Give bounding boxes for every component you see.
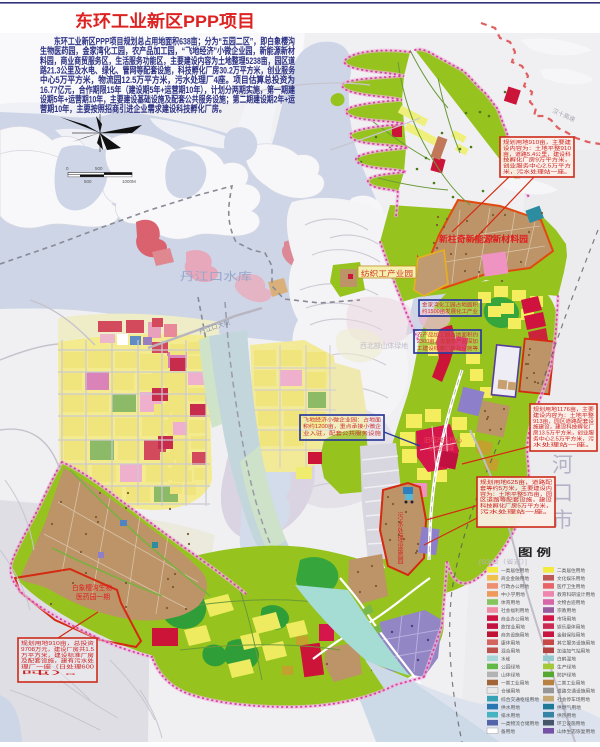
svg-text:防护绿地: 防护绿地 — [557, 672, 576, 679]
svg-text:工建设标准厂房及设施等: 工建设标准厂房及设施等 — [417, 344, 478, 352]
svg-text:施建设，建设科技孵化厂: 施建设，建设科技孵化厂 — [533, 423, 594, 431]
svg-text:业入驻，配套公共服务设施: 业入驻，配套公共服务设施 — [303, 429, 381, 437]
svg-text:路21.3公里及水电、绿化、管网等配套设施，科技孵化厂房30: 路21.3公里及水电、绿化、管网等配套设施，科技孵化厂房30.2万平方米，创业服… — [40, 65, 296, 76]
svg-text:道路交通设施用地: 道路交通设施用地 — [557, 688, 595, 695]
svg-text:万平方米，建设标准厂房: 万平方米，建设标准厂房 — [21, 651, 94, 659]
svg-text:9708万元，建设厂房共1.5: 9708万元，建设厂房共1.5 — [21, 645, 94, 653]
svg-text:生产绿地: 生产绿地 — [557, 664, 576, 671]
svg-text:规划用地1176亩，主要: 规划用地1176亩，主要 — [533, 405, 594, 413]
svg-text:其它服务设施用地: 其它服务设施用地 — [557, 639, 595, 646]
svg-text:混合用地: 混合用地 — [501, 648, 520, 655]
svg-text:一类物流仓储用地: 一类物流仓储用地 — [501, 720, 539, 727]
svg-text:一类居住用地: 一类居住用地 — [501, 567, 529, 574]
svg-text:山体绿地: 山体绿地 — [501, 672, 520, 679]
svg-text:规划用地625亩，道路配: 规划用地625亩，道路配 — [480, 478, 553, 486]
svg-text:料园，商业商贸服务区，生活服务功能区，主要建设内容为土地整理: 料园，商业商贸服务区，生活服务功能区，主要建设内容为土地整理5238亩，园区道 — [40, 55, 296, 66]
svg-text:农产品加工园占地面积约: 农产品加工园占地面积约 — [417, 331, 478, 339]
svg-text:体育用地: 体育用地 — [501, 599, 520, 606]
svg-text:技孵化厂房9万平方米，: 技孵化厂房9万平方米， — [503, 156, 571, 164]
svg-text:一类工业用地: 一类工业用地 — [501, 680, 529, 687]
svg-text:商业金融用地: 商业金融用地 — [501, 575, 529, 582]
svg-text:二类居住用地: 二类居住用地 — [557, 567, 585, 574]
svg-text:中心5万平方米，物流园12.5万平方米，污水处理厂4座。项目: 中心5万平方米，物流园12.5万平方米，污水处理厂4座。项目估算总投资为 — [40, 74, 295, 85]
svg-text:市场用地: 市场用地 — [557, 615, 576, 622]
svg-text:综合交通枢纽用地: 综合交通枢纽用地 — [501, 696, 539, 703]
svg-text:房13.5万平方米，创业服: 房13.5万平方米，创业服 — [533, 429, 595, 437]
svg-text:白象樱沟生物: 白象樱沟生物 — [72, 583, 112, 592]
svg-text:[S302（省道）]: [S302（省道）] — [479, 558, 527, 566]
svg-text:旧城改造核心: 旧城改造核心 — [424, 435, 462, 444]
svg-text:娱乐康体用地: 娱乐康体用地 — [557, 623, 585, 630]
svg-text:及配套设施，建有污水处: 及配套设施，建有污水处 — [21, 657, 94, 665]
svg-text:教育科研设计用地: 教育科研设计用地 — [557, 591, 595, 598]
svg-text:水域: 水域 — [501, 656, 510, 662]
svg-text:文化娱乐用地: 文化娱乐用地 — [557, 575, 585, 582]
svg-text:加油加气站用地: 加油加气站用地 — [557, 648, 590, 655]
svg-text:公园绿地: 公园绿地 — [501, 664, 520, 671]
svg-text:设内容为：土地平整910: 设内容为：土地平整910 — [503, 144, 571, 152]
svg-text:吨）。: 吨）。 — [21, 669, 94, 677]
svg-text:规划用地910亩，总投资: 规划用地910亩，总投资 — [21, 639, 94, 647]
svg-text:米，污水处理站一座。: 米，污水处理站一座。 — [503, 168, 571, 176]
svg-text:丹江口水库: 丹江口水库 — [180, 270, 252, 283]
svg-text:容为：土地平整575亩，园: 容为：土地平整575亩，园 — [480, 490, 552, 498]
svg-text:约1500亩发展化工产业: 约1500亩发展化工产业 — [422, 307, 478, 315]
svg-text:二类工业用地: 二类工业用地 — [557, 680, 585, 687]
svg-text:2300亩，发展农产品深加: 2300亩，发展农产品深加 — [417, 337, 478, 345]
svg-text:亩，道路5.4公里，建设科: 亩，道路5.4公里，建设科 — [503, 150, 571, 158]
svg-text:供热用地: 供热用地 — [557, 712, 576, 719]
svg-text:营期10年，主要按照招商引进企业需求建设科技孵化厂房。: 营期10年，主要按照招商引进企业需求建设科技孵化厂房。 — [40, 103, 226, 114]
svg-text:套等约5万米，主要建设内: 套等约5万米，主要建设内 — [480, 484, 552, 492]
svg-text:河: 河 — [552, 454, 573, 477]
svg-text:供燃气用地: 供燃气用地 — [557, 704, 581, 711]
svg-text:规划用地910亩，主要建: 规划用地910亩，主要建 — [503, 138, 571, 146]
svg-text:康体用地: 康体用地 — [501, 639, 520, 646]
svg-text:旅馆业用地: 旅馆业用地 — [501, 623, 525, 630]
svg-text:东环工业新区PPP项目: 东环工业新区PPP项目 — [75, 11, 255, 31]
svg-text:文物古迹用地: 文物古迹用地 — [557, 599, 585, 606]
svg-text:积约1200亩，重点承接小微企: 积约1200亩，重点承接小微企 — [303, 422, 382, 430]
svg-text:图 例: 图 例 — [518, 546, 551, 559]
svg-text:环卫设施用地: 环卫设施用地 — [557, 720, 585, 727]
svg-text:社会停车场用地: 社会停车场用地 — [557, 696, 590, 703]
svg-text:913亩，园区道路配套设: 913亩，园区道路配套设 — [533, 417, 594, 425]
svg-text:500: 500 — [84, 179, 92, 184]
svg-text:供水用地: 供水用地 — [501, 704, 520, 711]
svg-text:商业办公用地: 商业办公用地 — [501, 615, 529, 622]
svg-text:新柱奇新能源新材料园: 新柱奇新能源新材料园 — [439, 234, 528, 244]
svg-text:备用地: 备用地 — [501, 728, 515, 735]
svg-text:飞地经济小微企业园：占地面: 飞地经济小微企业园：占地面 — [303, 416, 381, 424]
svg-text:500: 500 — [95, 166, 103, 171]
svg-text:纺织工产业园: 纺织工产业园 — [361, 268, 413, 278]
svg-text:白鹤湿地: 白鹤湿地 — [557, 656, 576, 663]
svg-text:行政办公用地: 行政办公用地 — [501, 583, 529, 590]
svg-text:金家湾化工园占地面积: 金家湾化工园占地面积 — [422, 301, 478, 309]
svg-text:山体生态恢复用地: 山体生态恢复用地 — [557, 728, 595, 735]
svg-text:排水用地: 排水用地 — [501, 712, 520, 719]
svg-text:污水处理设施园: 污水处理设施园 — [396, 511, 403, 565]
svg-text:示范区域: 示范区域 — [428, 443, 455, 452]
svg-text:16.77亿元，合作期限15年（建设期5年+运营期10年），: 16.77亿元，合作期限15年（建设期5年+运营期10年），计划分两期实施，第一… — [40, 84, 296, 95]
svg-text:1000M: 1000M — [122, 179, 136, 184]
svg-text:区道路等配套设施，建设: 区道路等配套设施，建设 — [480, 496, 552, 504]
svg-text:理厂一座（日处理600: 理厂一座（日处理600 — [21, 663, 94, 671]
svg-text:仓储用地: 仓储用地 — [501, 688, 520, 695]
svg-text:商务设施用地: 商务设施用地 — [501, 631, 529, 638]
svg-text:西北部山体绿地: 西北部山体绿地 — [360, 341, 408, 350]
svg-text:金融保险用地: 金融保险用地 — [557, 631, 585, 638]
svg-text:科技孵化厂房5万平方米，: 科技孵化厂房5万平方米， — [480, 502, 552, 510]
svg-text:医药园一期: 医药园一期 — [76, 592, 110, 601]
svg-text:生物医药园，金家湾化工园，农产品加工园，“飞地经济”小微企业: 生物医药园，金家湾化工园，农产品加工园，“飞地经济”小微企业园，新能源新材 — [40, 45, 295, 56]
svg-text:水处理站一座。: 水处理站一座。 — [533, 440, 594, 448]
svg-text:中小学用地: 中小学用地 — [501, 591, 525, 598]
svg-text:创业服务中心2.5万平方: 创业服务中心2.5万平方 — [503, 162, 571, 170]
svg-text:务中心2.5万平方米，污: 务中心2.5万平方米，污 — [533, 435, 594, 443]
svg-text:医疗卫生用地: 医疗卫生用地 — [557, 583, 585, 590]
svg-text:宗教用地: 宗教用地 — [557, 607, 576, 614]
svg-text:污水处理站一座。: 污水处理站一座。 — [480, 508, 552, 516]
svg-text:建设内容为：土地平整: 建设内容为：土地平整 — [533, 411, 594, 419]
svg-text:社会福利用地: 社会福利用地 — [501, 607, 529, 614]
